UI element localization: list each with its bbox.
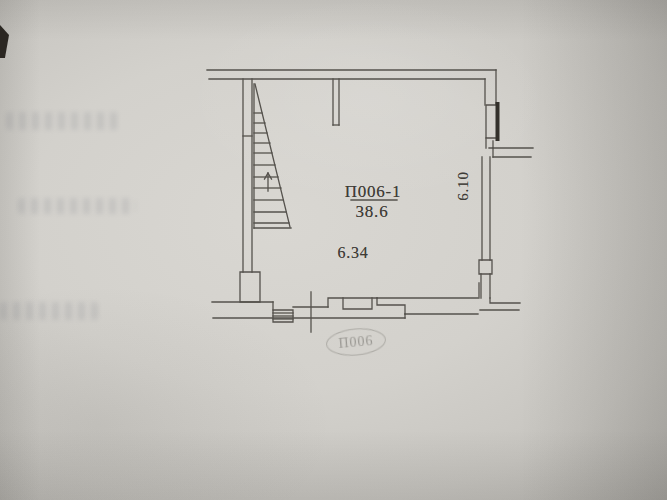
room-stamp-label: П006 [338,333,374,350]
stub-wall [333,79,339,125]
room-area-value: 38.6 [356,203,389,220]
dimension-width: 6.34 [337,245,368,261]
window-symbol [486,104,498,139]
floor-plan-drawing [0,0,667,500]
bottom-wall [212,283,479,332]
side-opening-lines [489,148,533,157]
right-extension-lines [480,298,520,310]
floor-plan-photo: П006-1 38.6 6.34 6.10 П006 [0,0,667,500]
threshold-steps [273,310,293,322]
dimension-height: 6.10 [456,171,471,200]
staircase [254,84,291,228]
right-wall [479,70,533,298]
top-wall [207,70,496,79]
entry-porch [328,298,478,314]
room-label: П006-1 [345,183,402,200]
